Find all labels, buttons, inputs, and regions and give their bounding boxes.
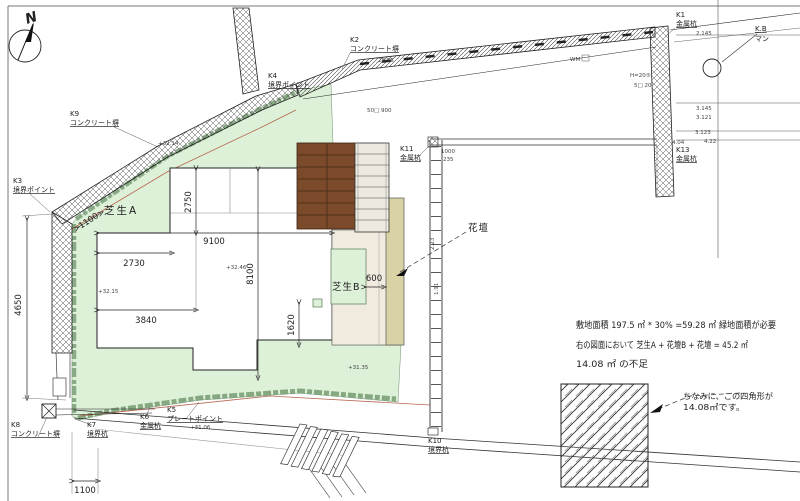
svg-text:2.23: 2.23 <box>430 237 436 250</box>
svg-text:コンクリート塀: コンクリート塀 <box>350 44 399 53</box>
svg-text:境界杭: 境界杭 <box>428 445 449 454</box>
svg-text:コンクリート塀: コンクリート塀 <box>11 429 60 438</box>
svg-text:3.121: 3.121 <box>696 115 712 121</box>
svg-text:+31.06: +31.06 <box>190 425 211 431</box>
marker-k6: K6 金属杭 <box>140 407 161 430</box>
dim-8100: 8100 <box>246 263 256 285</box>
svg-text:K5: K5 <box>167 406 176 414</box>
svg-text:マン: マン <box>755 35 769 43</box>
marker-k8: K8 コンクリート塀 <box>11 417 60 438</box>
svg-text:K2: K2 <box>350 36 359 44</box>
svg-text:1000: 1000 <box>441 149 455 155</box>
svg-text:+32.15: +32.15 <box>98 289 119 295</box>
svg-text:1.91: 1.91 <box>434 283 440 295</box>
marker-k11: K11 金属杭 <box>400 145 428 162</box>
svg-text:+32.46: +32.46 <box>226 265 247 271</box>
dim-3840: 3840 <box>135 316 157 326</box>
svg-text:境界ポイント: 境界ポイント <box>13 185 55 194</box>
dim-1620: 1620 <box>287 314 297 336</box>
svg-text:金属杭: 金属杭 <box>676 154 697 163</box>
svg-text:K11: K11 <box>400 145 414 153</box>
svg-text:K9: K9 <box>70 110 79 118</box>
svg-text:K6: K6 <box>140 413 150 421</box>
flower-bed-label: 花壇 <box>468 222 489 234</box>
svg-text:境界杭: 境界杭 <box>87 429 108 438</box>
dim-1100-bottom: 1100 <box>74 486 96 496</box>
driveway-steps <box>278 422 361 479</box>
square-callout-line1: ちなみに、この四角形が <box>683 391 773 401</box>
north-arrow: N <box>9 9 41 62</box>
note-line3: 14.08 ㎡ の不足 <box>576 359 648 370</box>
flower-bed-callout: 花壇 <box>396 222 489 276</box>
svg-text:K10: K10 <box>428 437 442 445</box>
square-callout-line2: 14.08㎡です。 <box>683 403 745 412</box>
svg-text:K4: K4 <box>268 72 278 80</box>
road-lines <box>74 410 800 498</box>
dim-2750: 2750 <box>184 191 194 213</box>
dim-4650: 4650 <box>14 294 24 316</box>
svg-text:235: 235 <box>443 157 454 163</box>
note-line1: 敷地面積 197.5 ㎡ * 30% =59.28 ㎡ 緑地面積が必要 <box>576 319 776 331</box>
svg-text:50□ 900: 50□ 900 <box>367 108 392 114</box>
svg-text:4.04: 4.04 <box>672 140 685 146</box>
svg-text:K13: K13 <box>676 146 690 154</box>
marker-k5: K5 プレートポイント <box>167 402 223 423</box>
lawn-b-label: 芝生B <box>332 281 361 293</box>
svg-text:境界ポイント: 境界ポイント <box>268 80 310 89</box>
marker-kb: K.B マン <box>755 25 769 43</box>
svg-text:K8: K8 <box>11 421 20 429</box>
marker-k10: K10 境界杭 <box>428 437 449 454</box>
dim-600: 600 <box>366 274 382 284</box>
dim-2730: 2730 <box>123 259 145 269</box>
svg-text:K1: K1 <box>676 11 685 19</box>
svg-text:+32.14: +32.14 <box>158 141 179 147</box>
dim-9100: 9100 <box>203 237 225 247</box>
svg-text:H=20⑤: H=20⑤ <box>630 73 651 79</box>
stairs <box>355 143 389 232</box>
site-plan-canvas: N 9100 2730 3840 2750 8100 1620 600 4650… <box>0 0 800 501</box>
svg-text:WM: WM <box>570 57 580 63</box>
svg-text:3.123: 3.123 <box>695 130 711 136</box>
svg-text:4.22: 4.22 <box>704 139 716 145</box>
svg-text:28.55: 28.55 <box>378 58 394 64</box>
marker-k7: K7 境界杭 <box>75 419 108 438</box>
svg-text:金属杭: 金属杭 <box>676 19 697 28</box>
svg-text:3.145: 3.145 <box>696 106 712 112</box>
lawn-a-label: 芝生A <box>104 204 138 217</box>
svg-text:5□ 20: 5□ 20 <box>634 83 652 89</box>
marker-k3: K3 境界ポイント <box>13 177 55 212</box>
svg-text:コンクリート塀: コンクリート塀 <box>70 118 119 127</box>
svg-text:+31.35: +31.35 <box>348 365 369 371</box>
area-calculation-note: 敷地面積 197.5 ㎡ * 30% =59.28 ㎡ 緑地面積が必要 右の図面… <box>576 319 776 370</box>
north-label: N <box>23 9 39 28</box>
reference-square: ちなみに、この四角形が 14.08㎡です。 <box>561 384 773 487</box>
manhole <box>703 34 757 77</box>
marker-k9: K9 コンクリート塀 <box>70 110 158 147</box>
svg-text:K3: K3 <box>13 177 22 185</box>
marker-k13: K13 金属杭 <box>676 146 697 163</box>
neighbour-edge <box>428 137 657 196</box>
svg-text:2.145: 2.145 <box>696 31 712 37</box>
note-line2: 右の図面において 芝生A + 花壇B + 花壇 = 45.2 ㎡ <box>576 339 748 351</box>
marker-k1: K1 金属杭 <box>664 11 697 38</box>
svg-text:プレートポイント: プレートポイント <box>167 415 223 423</box>
svg-text:金属杭: 金属杭 <box>140 421 161 430</box>
svg-text:K.B: K.B <box>755 25 767 33</box>
right-road <box>676 0 800 258</box>
wood-deck <box>297 143 355 229</box>
